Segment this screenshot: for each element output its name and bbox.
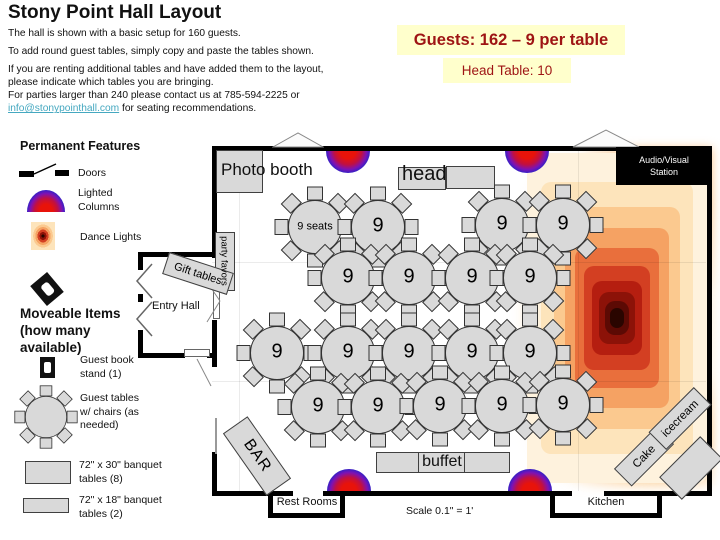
chair [523,397,537,413]
kitchen-label: Kitchen [552,496,660,508]
table-seat-count: 9 [496,394,507,417]
photo-booth-label: Photo booth [221,160,313,180]
tables-layer: 9 seats99999999999999999 [0,0,720,540]
chair [310,367,326,381]
table-seat-count: 9 [372,395,383,418]
table-seat-count: 9 seats [297,221,332,233]
chair [370,367,386,381]
chair [432,366,448,380]
chair [555,185,571,199]
chair [370,187,386,201]
chair [464,313,480,327]
chair [494,433,510,447]
table-seat-count: 9 [342,341,353,364]
chair [237,345,251,361]
chair [369,270,383,286]
table-seat-count: 9 [271,341,282,364]
chair [590,397,604,413]
table-seat-count: 9 [557,393,568,416]
party-favors-label: party favors [219,236,230,286]
table-seat-count: 9 [403,266,414,289]
chair [494,366,510,380]
chair [340,238,356,252]
chair [308,270,322,286]
chair [555,365,571,379]
chair [369,345,383,361]
chair [557,345,571,361]
chair [490,270,504,286]
chair [401,238,417,252]
buffet-label: buffet [376,452,508,471]
chair [432,433,448,447]
head-table-label: head [402,163,447,186]
chair [523,217,537,233]
chair [462,217,476,233]
chair [557,270,571,286]
entry-hall-label: Entry Hall [152,300,200,312]
chair [464,238,480,252]
chair [308,345,322,361]
chair [370,434,386,448]
table-seat-count: 9 [466,266,477,289]
table-seat-count: 9 [524,266,535,289]
chair [338,399,352,415]
chair [522,313,538,327]
chair [278,399,292,415]
chair [307,187,323,201]
chair [555,432,571,446]
chair [494,185,510,199]
chair [432,345,446,361]
table-seat-count: 9 [342,266,353,289]
chair [400,398,414,414]
rest-rooms-label: Rest Rooms [272,496,342,508]
chair [310,434,326,448]
chair [340,313,356,327]
table-seat-count: 9 [434,394,445,417]
chair [269,313,285,327]
guest-table[interactable]: 9 [518,360,608,450]
slide: Stony Point Hall Layout The hall is show… [0,0,720,540]
chair [432,270,446,286]
chair [522,238,538,252]
scale-note: Scale 0.1" = 1' [406,505,473,517]
table-seat-count: 9 [312,395,323,418]
chair [490,345,504,361]
chair [401,313,417,327]
chair [590,217,604,233]
chair [275,219,289,235]
chair [462,398,476,414]
